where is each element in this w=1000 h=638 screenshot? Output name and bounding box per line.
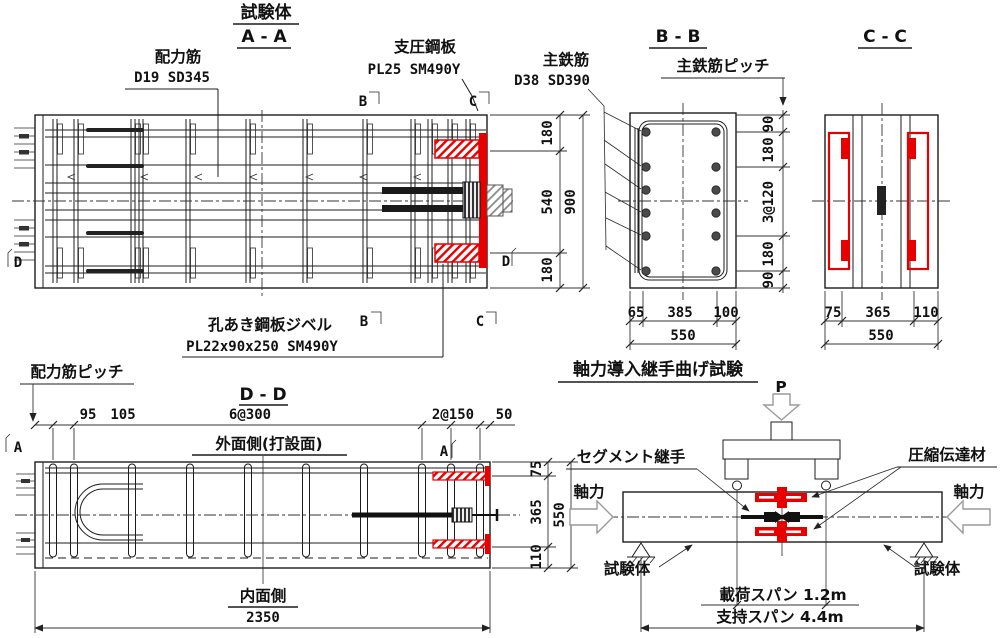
- outer-face-label: 外面側(打設面): [215, 434, 322, 453]
- marker-c-top: C: [469, 94, 477, 110]
- dim-dd-550: 550: [552, 502, 568, 527]
- dim-bb-3at120: 3@120: [761, 181, 777, 223]
- bb-rebar-dots: [642, 128, 720, 275]
- axial-force-left: 軸力: [570, 482, 613, 533]
- dim-dd-95: 95: [80, 407, 97, 423]
- dim-aa-540: 540: [540, 189, 556, 214]
- axial-arrow-right-icon: [947, 501, 990, 533]
- view-aa: B C B C D D: [8, 92, 516, 330]
- callout-main-bar-pitch: 主鉄筋ピッチ: [661, 56, 785, 105]
- dim-bb-385: 385: [667, 305, 692, 321]
- aa-coupler-sleeve: [463, 182, 480, 218]
- marker-b-bottom: B: [360, 314, 368, 330]
- bearing-plate-label: 支圧鋼板: [393, 37, 457, 56]
- section-aa-title: A - A: [241, 27, 287, 47]
- dim-aa-900: 900: [563, 189, 579, 214]
- main-bar-pitch-label: 主鉄筋ピッチ: [676, 56, 769, 75]
- dim-cc-365: 365: [865, 305, 890, 321]
- section-cc-title: C - C: [863, 27, 907, 47]
- dim-bb-180-bottom: 180: [761, 241, 777, 266]
- aa-dowel-plate-top: [435, 140, 479, 158]
- dim-dd-110: 110: [529, 544, 545, 569]
- dim-dd-6at300: 6@300: [229, 407, 271, 423]
- drawing-canvas: 試験体 A - A B - B C - C 配力筋 D19 SD345 支圧鋼板…: [0, 0, 1000, 638]
- compression-transfer-label: 圧縮伝達材: [908, 445, 986, 464]
- dim-bb-90-top: 90: [761, 116, 777, 133]
- dim-bb-550: 550: [670, 328, 695, 344]
- dim-dd-75: 75: [529, 461, 545, 478]
- dim-bb-right: 90 180 3@120 180 90: [736, 110, 790, 293]
- load-p-arrow-icon: [764, 394, 799, 420]
- specimen-left-label: 試験体: [604, 559, 651, 578]
- dim-aa-180-bottom: 180: [540, 257, 556, 282]
- aa-anchor-block-cap: [503, 189, 512, 212]
- aa-splice-bars: [88, 130, 142, 271]
- dim-dd-50: 50: [496, 407, 513, 423]
- dd-hairpin-bar-inner: [80, 489, 143, 535]
- dd-bearing-plate-bottom: [485, 534, 490, 554]
- aa-anchor-rod-upper: [382, 187, 464, 194]
- dim-bb-90-bottom: 90: [761, 272, 777, 289]
- callout-bearing-plate: 支圧鋼板 PL25 SM490Y: [368, 37, 478, 111]
- section-dd-title: D - D: [239, 385, 286, 405]
- distribution-bar-pitch-label: 配力筋ピッチ: [30, 362, 123, 381]
- dd-header: 配力筋ピッチ D - D 外面側(打設面): [20, 362, 347, 455]
- marker-d-left: D: [14, 255, 22, 271]
- main-bar-label: 主鉄筋: [543, 50, 590, 69]
- dim-cc-550: 550: [868, 328, 893, 344]
- specimen-title: 試験体: [241, 2, 293, 23]
- dim-dd-2at150: 2@150: [432, 407, 474, 423]
- dim-cc-bottom: 75 365 110 550: [821, 291, 942, 350]
- marker-a-right: A: [440, 444, 449, 460]
- aa-horizontal-bars: [45, 130, 486, 273]
- axial-arrow-left-icon: [570, 501, 613, 533]
- marker-b-top: B: [359, 94, 367, 110]
- dd-dowel-bar-top: [433, 472, 490, 480]
- distribution-bar-label: 配力筋: [155, 47, 202, 66]
- aa-anchor-block: [487, 185, 503, 216]
- segment-joint-label: セグメント継手: [577, 447, 686, 466]
- span-dimensions: 載荷スパン 1.2m 支持スパン 4.4m: [641, 558, 924, 632]
- dd-anchor-rod: [352, 508, 497, 522]
- distribution-bar-spec: D19 SD345: [134, 70, 210, 86]
- marker-a-left: A: [14, 440, 23, 456]
- section-cc: 75 365 110 550: [812, 103, 950, 350]
- dim-aa-180-top: 180: [540, 120, 556, 145]
- dd-hairpin-bar-outer: [75, 484, 143, 540]
- bearing-plate-spec: PL25 SM490Y: [368, 62, 461, 78]
- dim-bb-100: 100: [713, 305, 738, 321]
- dim-cc-75: 75: [825, 305, 842, 321]
- specimen-right-label: 試験体: [914, 559, 961, 578]
- main-bar-spec: D38 SD390: [514, 73, 590, 89]
- aa-concrete-outline: [35, 115, 487, 288]
- dim-bb-65: 65: [628, 305, 645, 321]
- aa-left-anchor-ticks: [14, 128, 35, 260]
- support-span-label: 支持スパン 4.4m: [715, 607, 843, 626]
- marker-d-right: D: [502, 254, 510, 270]
- roller-left-icon: [733, 481, 742, 490]
- section-bb-title: B - B: [656, 27, 701, 47]
- dd-bottom-labels: 内面側 2350: [35, 571, 490, 633]
- inner-face-label: 内面側: [240, 586, 287, 605]
- loading-rig: [723, 422, 840, 490]
- dim-dd-365: 365: [529, 499, 545, 524]
- bending-test-diagram: 軸力導入継手曲げ試験 P 軸力: [558, 359, 997, 632]
- marker-c-bottom: C: [476, 314, 484, 330]
- structural-drawing: 試験体 A - A B - B C - C 配力筋 D19 SD345 支圧鋼板…: [0, 0, 1000, 638]
- aa-chevron-marks: [68, 174, 421, 180]
- aa-dowel-plate-bottom: [435, 244, 479, 262]
- perfobond-spec: PL22x90x250 SM490Y: [186, 339, 338, 355]
- aa-anchor-rod-lower: [382, 205, 464, 212]
- perfobond-label: 孔あき鋼板ジベル: [208, 315, 333, 334]
- header-titles: 試験体 A - A B - B C - C: [233, 2, 912, 48]
- dd-dowel-bar-bottom: [433, 540, 490, 548]
- dim-dd-105: 105: [110, 407, 135, 423]
- dd-bearing-plate-top: [485, 466, 490, 486]
- dim-cc-110: 110: [913, 305, 938, 321]
- dim-bb-180-top: 180: [761, 137, 777, 162]
- section-bb: 90 180 3@120 180 90 65 385 100 550: [618, 103, 790, 350]
- axial-force-left-label: 軸力: [573, 482, 604, 501]
- view-dd: 配力筋ピッチ D - D 外面側(打設面) 95 105 6@300 2@150…: [6, 362, 578, 633]
- callout-main-bar: 主鉄筋 D38 SD390: [514, 50, 641, 270]
- bending-test-title: 軸力導入継手曲げ試験: [573, 359, 744, 380]
- callout-segment-joint: セグメント継手: [566, 447, 749, 511]
- roller-right-icon: [822, 481, 831, 490]
- axial-force-right-label: 軸力: [953, 482, 984, 501]
- cc-center-coupler: [877, 186, 886, 215]
- dd-left-anchor-ticks: [16, 474, 35, 554]
- loading-span-label: 載荷スパン 1.2m: [719, 586, 846, 604]
- axial-force-right: 軸力: [947, 482, 990, 533]
- dim-dd-2350: 2350: [246, 610, 280, 626]
